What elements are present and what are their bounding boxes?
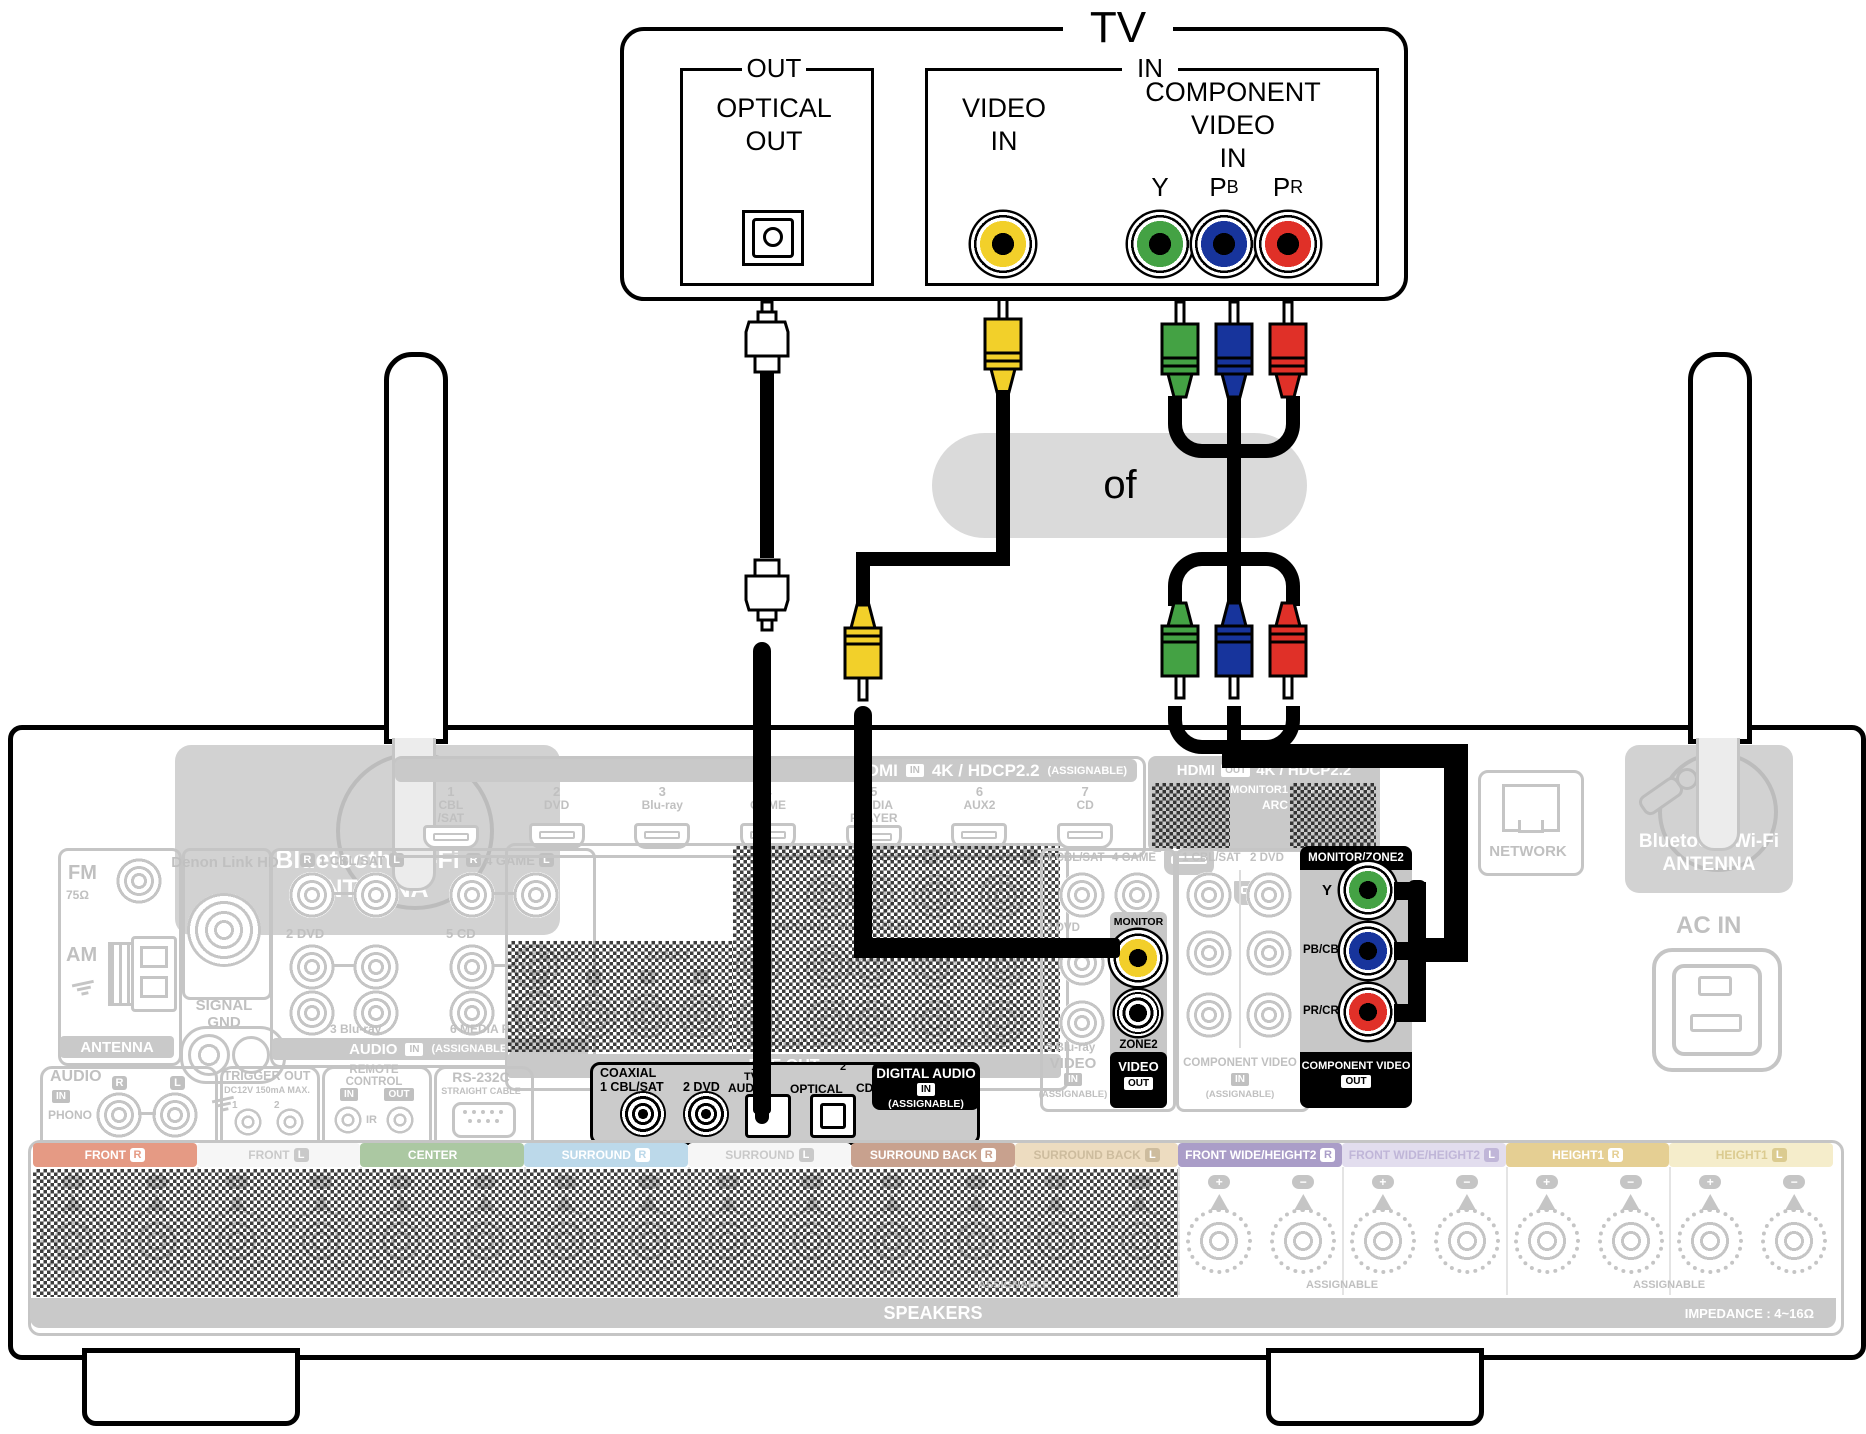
tv-out-group-label: OUT (742, 54, 806, 82)
ac-in-label: AC IN (1676, 912, 1741, 940)
coaxial-label: COAXIAL (600, 1066, 656, 1080)
hatch-overlay (508, 941, 733, 1052)
hdmi-input: 3 Blu-ray (609, 785, 715, 849)
ac-inlet-slot-top (1698, 976, 1732, 996)
component-cable-receiver-v (1444, 744, 1468, 962)
optical-2-number: 2 (840, 1061, 846, 1073)
phono-audio-label: AUDIO (50, 1068, 102, 1086)
rca-jack (449, 872, 495, 918)
speaker-terminal-minus: − (1761, 1175, 1827, 1295)
tv-component-pr-jack (1256, 212, 1320, 276)
speaker-terminal-minus: − (1598, 1175, 1664, 1295)
speaker-channel-header: SURROUND BACK L (1015, 1143, 1179, 1167)
assignable-label-3: ASSIGNABLE (1609, 1278, 1729, 1292)
optical-jack-cd-inner (820, 1103, 846, 1129)
tv-component-in-label: COMPONENT VIDEOIN (1100, 92, 1366, 158)
trigger-title: TRIGGER OUT (220, 1069, 314, 1083)
coaxial-jack-1 (620, 1091, 666, 1137)
speaker-channel-header: FRONT WIDE/HEIGHT2 L (1342, 1143, 1506, 1167)
video-in-badge: IN (1040, 1072, 1106, 1086)
out-badge: OUT (1341, 1075, 1370, 1088)
am-terminal-hole2 (140, 976, 168, 998)
speaker-column: HEIGHT1 R + − (1506, 1143, 1670, 1295)
component-in-badge: IN (1176, 1072, 1304, 1086)
terminal-knob (1270, 1208, 1336, 1274)
minus-sign: − (1783, 1175, 1805, 1189)
speaker-channel-name: SURROUND (562, 1148, 631, 1162)
plus-sign: + (1699, 1175, 1721, 1189)
db9-pins (463, 1110, 467, 1114)
terminal-knob (1434, 1208, 1500, 1274)
speaker-terminal-minus: − (1434, 1175, 1500, 1295)
rca-jack (1186, 992, 1232, 1038)
component-out-pr-jack (1340, 984, 1396, 1040)
fm-ohm-label: 75Ω (66, 888, 89, 902)
minus-sign: − (1456, 1175, 1478, 1189)
antenna-rod-right-inner (1696, 738, 1740, 851)
optical-plug-bottom-icon (743, 552, 791, 632)
optical-plug-top-icon (743, 300, 791, 380)
ethernet-port-notch (1518, 820, 1544, 833)
speaker-channel-name: SURROUND (725, 1148, 794, 1162)
composite-plug-bottom-icon (841, 602, 885, 702)
speaker-side-badge: R (981, 1148, 996, 1162)
speaker-channel-header: HEIGHT1 L (1669, 1143, 1833, 1167)
optical-plug-inserted (755, 1096, 769, 1124)
out-badge: OUT (1124, 1077, 1153, 1090)
composite-cable-into-receiver-v (854, 706, 872, 958)
r-badge: R (300, 853, 315, 867)
component-out-pr-label: PR/CR (1303, 1005, 1339, 1017)
video-out-monitor-label: MONITOR (1110, 915, 1167, 928)
terminal-knob (1186, 1208, 1252, 1274)
speaker-channel-header: SURROUND L (688, 1143, 852, 1167)
component-in-divider (1239, 870, 1241, 1048)
hatch-overlay (1152, 783, 1230, 849)
am-label: AM (66, 944, 97, 967)
diagram-canvas: Bluetooth/Wi-FiANTENNA Bluetooth/Wi-FiAN… (0, 0, 1866, 1434)
rs232-title: RS-232C (434, 1069, 528, 1084)
speaker-side-badge: R (635, 1148, 650, 1162)
terminal-neck (1701, 1194, 1719, 1210)
jack-pair-line (138, 1112, 156, 1123)
hdmi-input: 5 MEDIAPLAYER (821, 785, 927, 849)
speaker-channel-header: CENTER (360, 1143, 524, 1167)
hdmi-input-name: CD (1077, 799, 1094, 823)
network-label: NETWORK (1478, 840, 1578, 862)
speaker-column: FRONT WIDE/HEIGHT2 R + − (1178, 1143, 1342, 1295)
in-badge: IN (917, 1083, 935, 1096)
in-badge: IN (405, 1043, 423, 1056)
receiver-foot-right (1266, 1348, 1484, 1426)
r-badge: R (112, 1076, 127, 1090)
terminal-knob (1677, 1208, 1743, 1274)
trigger-2-label: 2 (274, 1100, 280, 1111)
terminal-neck (1374, 1194, 1392, 1210)
speaker-side-badge: L (294, 1148, 309, 1162)
assignable-label-1: ASSIGNABLE (954, 1278, 1074, 1292)
speaker-side-badge: R (130, 1148, 145, 1162)
component-in-c1-label: 1 CBL/SAT (1182, 852, 1241, 864)
video-out-block: VIDEO OUT (1110, 1052, 1167, 1108)
trigger-jack-2 (276, 1108, 304, 1136)
composite-cable-into-receiver-h (854, 938, 1120, 958)
db9-connector-icon (452, 1102, 516, 1138)
video-in-r3-label: 3 Blu-ray (1046, 1042, 1095, 1054)
rca-jack (449, 944, 495, 990)
remote-title: REMOTE CONTROL (322, 1069, 426, 1083)
coaxial-1-label: 1 CBL/SAT (600, 1080, 664, 1094)
antenna-coax-nut-icon (1676, 768, 1698, 790)
antenna-bar: ANTENNA (60, 1036, 174, 1058)
component-in-c2-label: 2 DVD (1250, 852, 1284, 864)
hdmi-input-name: Blu-ray (642, 799, 683, 823)
video-in-c1-label: 1 CBL/SAT (1046, 852, 1105, 864)
jack-pair-line (333, 964, 355, 975)
or-label: of (1060, 433, 1180, 538)
hdmi-input: 2 DVD (504, 785, 610, 849)
hdmi-input-number: 2 (553, 785, 560, 799)
component-bracket-stub-y (1394, 882, 1426, 900)
hdmi-input-number: 6 (976, 785, 983, 799)
jack-pair-line (333, 892, 355, 903)
impedance-label: IMPEDANCE : 4~16Ω (1685, 1306, 1814, 1321)
speaker-channel-header: HEIGHT1 R (1506, 1143, 1670, 1167)
speaker-channel-header: FRONT L (197, 1143, 361, 1167)
tv-video-in-jack (971, 212, 1035, 276)
audio-in-row3-left-label: 3 Blu-ray (330, 1022, 381, 1036)
speaker-channel-name: SURROUND BACK (870, 1148, 977, 1162)
speaker-terminal-pair: + − (1178, 1167, 1342, 1295)
terminal-neck (1210, 1194, 1228, 1210)
am-terminal-hole1 (140, 946, 168, 968)
component-plug-top-blue (1212, 300, 1256, 400)
digital-audio-block: DIGITAL AUDIO IN (ASSIGNABLE) (872, 1062, 980, 1110)
component-plug-top-green (1158, 300, 1202, 400)
assignable-label-2: ASSIGNABLE (1282, 1278, 1402, 1292)
hdmi-input: 7 CD (1032, 785, 1138, 849)
trigger-1-label: 1 (232, 1100, 238, 1111)
optical-cable-upper (760, 372, 774, 558)
speaker-channel-name: FRONT (85, 1148, 126, 1162)
tv-component-pr-label: PR (1258, 172, 1318, 202)
terminal-knob (1598, 1208, 1664, 1274)
denon-link-jack (187, 893, 261, 967)
speakers-bar: SPEAKERS IMPEDANCE : 4~16Ω (30, 1298, 1836, 1328)
hdmi-out-arc-label: ARC (1224, 798, 1288, 812)
rca-jack (353, 944, 399, 990)
component-out-block: COMPONENT VIDEO OUT (1300, 1052, 1412, 1108)
phono-label: PHONO (48, 1108, 92, 1122)
tv-optical-out-label: OPTICALOUT (690, 92, 858, 158)
terminal-knob (1761, 1208, 1827, 1274)
component-out-pb-jack (1340, 923, 1396, 979)
speaker-side-badge: R (1608, 1148, 1623, 1162)
audio-in-row2-left-label: 2 DVD (286, 926, 324, 941)
rca-jack (289, 944, 335, 990)
component-out-y-jack (1340, 862, 1396, 918)
speaker-terminal-plus: + (1186, 1175, 1252, 1295)
trigger-sub: DC12V 150mA MAX. (220, 1084, 314, 1095)
video-in-note: (ASSIGNABLE) (1036, 1088, 1110, 1100)
hdmi-input: 1 CBL/SAT (398, 785, 504, 849)
speaker-channel-header: SURROUND BACK R (851, 1143, 1015, 1167)
in-badge: IN (906, 764, 924, 777)
video-in-r2-label: 2 DVD (1046, 922, 1080, 934)
fm-label: FM (68, 862, 97, 885)
tv-component-y-label: Y (1130, 172, 1190, 202)
speaker-terminal-pair: + − (1506, 1167, 1670, 1295)
plus-sign: + (1536, 1175, 1558, 1189)
rca-jack (289, 872, 335, 918)
component-plug-bottom-green (1158, 600, 1202, 700)
trigger-jack-1 (234, 1108, 262, 1136)
component-plug-top-red (1266, 300, 1310, 400)
component-split-bracket (1168, 552, 1300, 606)
rca-jack (1246, 872, 1292, 918)
speaker-side-badge (461, 1148, 476, 1162)
speaker-column: HEIGHT1 L + − (1669, 1143, 1833, 1295)
component-plug-bottom-blue (1212, 600, 1256, 700)
component-in-name: COMPONENT VIDEO (1176, 1056, 1304, 1070)
hdmi-input-name: CBL/SAT (438, 799, 464, 825)
composite-cable-v1 (996, 390, 1010, 566)
rca-jack (1059, 1000, 1105, 1046)
composite-cable-v2 (856, 552, 870, 608)
speaker-terminal-plus: + (1350, 1175, 1416, 1295)
component-cable-receiver-h2 (1420, 938, 1468, 962)
remote-out-badge: OUT (384, 1088, 414, 1101)
video-in-name: VIDEO (1040, 1054, 1106, 1072)
receiver-foot-left (82, 1348, 300, 1426)
remote-out-jack (386, 1106, 414, 1134)
rca-jack (1059, 872, 1105, 918)
component-bracket-stub-pb (1394, 942, 1426, 960)
rca-jack (152, 1092, 198, 1138)
rca-jack (1246, 930, 1292, 976)
speaker-side-badge: L (1772, 1148, 1787, 1162)
speaker-side-badge: R (1320, 1148, 1335, 1162)
remote-ir-label: IR (366, 1114, 377, 1126)
hdmi-input-number: 3 (659, 785, 666, 799)
minus-sign: − (1620, 1175, 1642, 1189)
rca-jack (289, 990, 335, 1036)
speaker-terminal-plus: + (1677, 1175, 1743, 1295)
component-in-note: (ASSIGNABLE) (1176, 1088, 1304, 1100)
tv-optical-out-jack-dot (763, 227, 783, 247)
speaker-terminal-pair: + − (1669, 1167, 1833, 1295)
remote-in-jack (334, 1106, 362, 1134)
rca-jack (96, 1092, 142, 1138)
hatch-overlay (1290, 783, 1376, 849)
component-cable-receiver-h1 (1222, 744, 1468, 768)
composite-plug-top-icon (981, 295, 1025, 395)
terminal-neck (1538, 1194, 1556, 1210)
speakers-bar-label: SPEAKERS (30, 1303, 1836, 1324)
remote-in-badge: IN (334, 1088, 364, 1101)
rca-jack (353, 872, 399, 918)
terminal-neck (1785, 1194, 1803, 1210)
speaker-channel-header: FRONT R (33, 1143, 197, 1167)
hdmi-input-number: 7 (1082, 785, 1089, 799)
denon-link-label: Denon Link HD (178, 852, 272, 872)
video-in-c2-label: 4 GAME (1112, 852, 1156, 864)
hdmi-out-monitor1-label: MONITOR1 (1224, 784, 1288, 796)
tv-title: TV (1063, 2, 1173, 54)
tv-video-in-label: VIDEOIN (940, 92, 1068, 158)
cd-label: CD (856, 1081, 873, 1095)
terminal-knob (1514, 1208, 1580, 1274)
audio-in-row2-right-label: 5 CD (446, 926, 476, 941)
phono-in-badge: IN (52, 1086, 70, 1104)
speaker-terminal-minus: − (1270, 1175, 1336, 1295)
coaxial-jack-2 (683, 1091, 729, 1137)
optical-cable-into-receiver (753, 642, 771, 1114)
tv-component-pb-label: PB (1194, 172, 1254, 202)
speaker-channel-name: FRONT WIDE/HEIGHT2 (1349, 1148, 1480, 1162)
hdmi-input-name: DVD (544, 799, 569, 823)
l-badge: L (170, 1076, 185, 1090)
rca-jack (1186, 872, 1232, 918)
speaker-side-badge: L (1484, 1148, 1499, 1162)
speaker-channel-name: HEIGHT1 (1552, 1148, 1604, 1162)
speaker-channel-name: FRONT (248, 1148, 289, 1162)
video-out-zone2-jack (1115, 990, 1161, 1036)
rs232-sub: STRAIGHT CABLE (434, 1085, 528, 1096)
tv-component-y-jack (1128, 212, 1192, 276)
component-plug-bottom-red (1266, 600, 1310, 700)
video-out-zone2-label: ZONE2 (1110, 1038, 1167, 1051)
speaker-side-badge: L (1145, 1148, 1160, 1162)
speaker-terminal-pair: + − (1342, 1167, 1506, 1295)
rca-jack (1246, 992, 1292, 1038)
speaker-channel-header: FRONT WIDE/HEIGHT2 R (1178, 1143, 1342, 1167)
speaker-channel-name: CENTER (408, 1148, 457, 1162)
antenna-rod-right (1688, 352, 1752, 744)
minus-sign: − (1292, 1175, 1314, 1189)
hdmi-input: 6 AUX2 (927, 785, 1033, 849)
speaker-side-badge: L (799, 1148, 814, 1162)
rca-jack (1186, 930, 1232, 976)
terminal-knob (1350, 1208, 1416, 1274)
hdmi-input-name: AUX2 (963, 799, 995, 823)
speaker-channel-name: HEIGHT1 (1716, 1148, 1768, 1162)
hdmi-input-number: 1 (447, 785, 454, 799)
component-bracket-stub-pr (1394, 1004, 1426, 1022)
plus-sign: + (1372, 1175, 1394, 1189)
speaker-column: FRONT WIDE/HEIGHT2 L + − (1342, 1143, 1506, 1295)
composite-cable-h (856, 552, 1010, 566)
component-out-pb-label: PB/CB (1303, 944, 1339, 956)
speaker-terminal-plus: + (1514, 1175, 1580, 1295)
terminal-neck (1458, 1194, 1476, 1210)
plus-sign: + (1208, 1175, 1230, 1189)
fm-antenna-jack (116, 858, 162, 904)
speaker-channel-name: FRONT WIDE/HEIGHT2 (1185, 1148, 1316, 1162)
hdmi-port-icon (423, 825, 479, 849)
ac-inlet-slot-bottom (1690, 1014, 1742, 1032)
tv-component-pb-jack (1192, 212, 1256, 276)
speaker-channel-header: SURROUND R (524, 1143, 688, 1167)
antenna-rod-left (384, 352, 448, 744)
terminal-neck (1622, 1194, 1640, 1210)
component-out-y-label: Y (1322, 882, 1332, 899)
speaker-channel-name: SURROUND BACK (1033, 1148, 1140, 1162)
terminal-neck (1294, 1194, 1312, 1210)
